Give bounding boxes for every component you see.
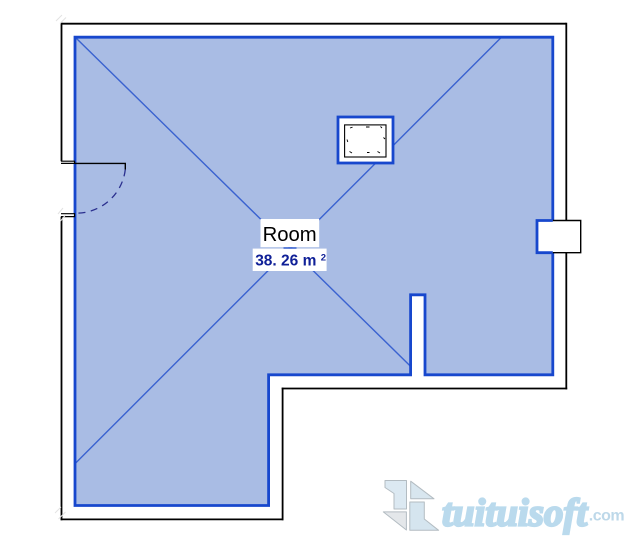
svg-text:2: 2 [321, 253, 326, 264]
svg-text:tuituisoft: tuituisoft [442, 492, 588, 535]
svg-text:.com: .com [589, 507, 625, 524]
svg-text:Room: Room [263, 224, 317, 246]
svg-text:38. 26 m: 38. 26 m [255, 252, 316, 269]
